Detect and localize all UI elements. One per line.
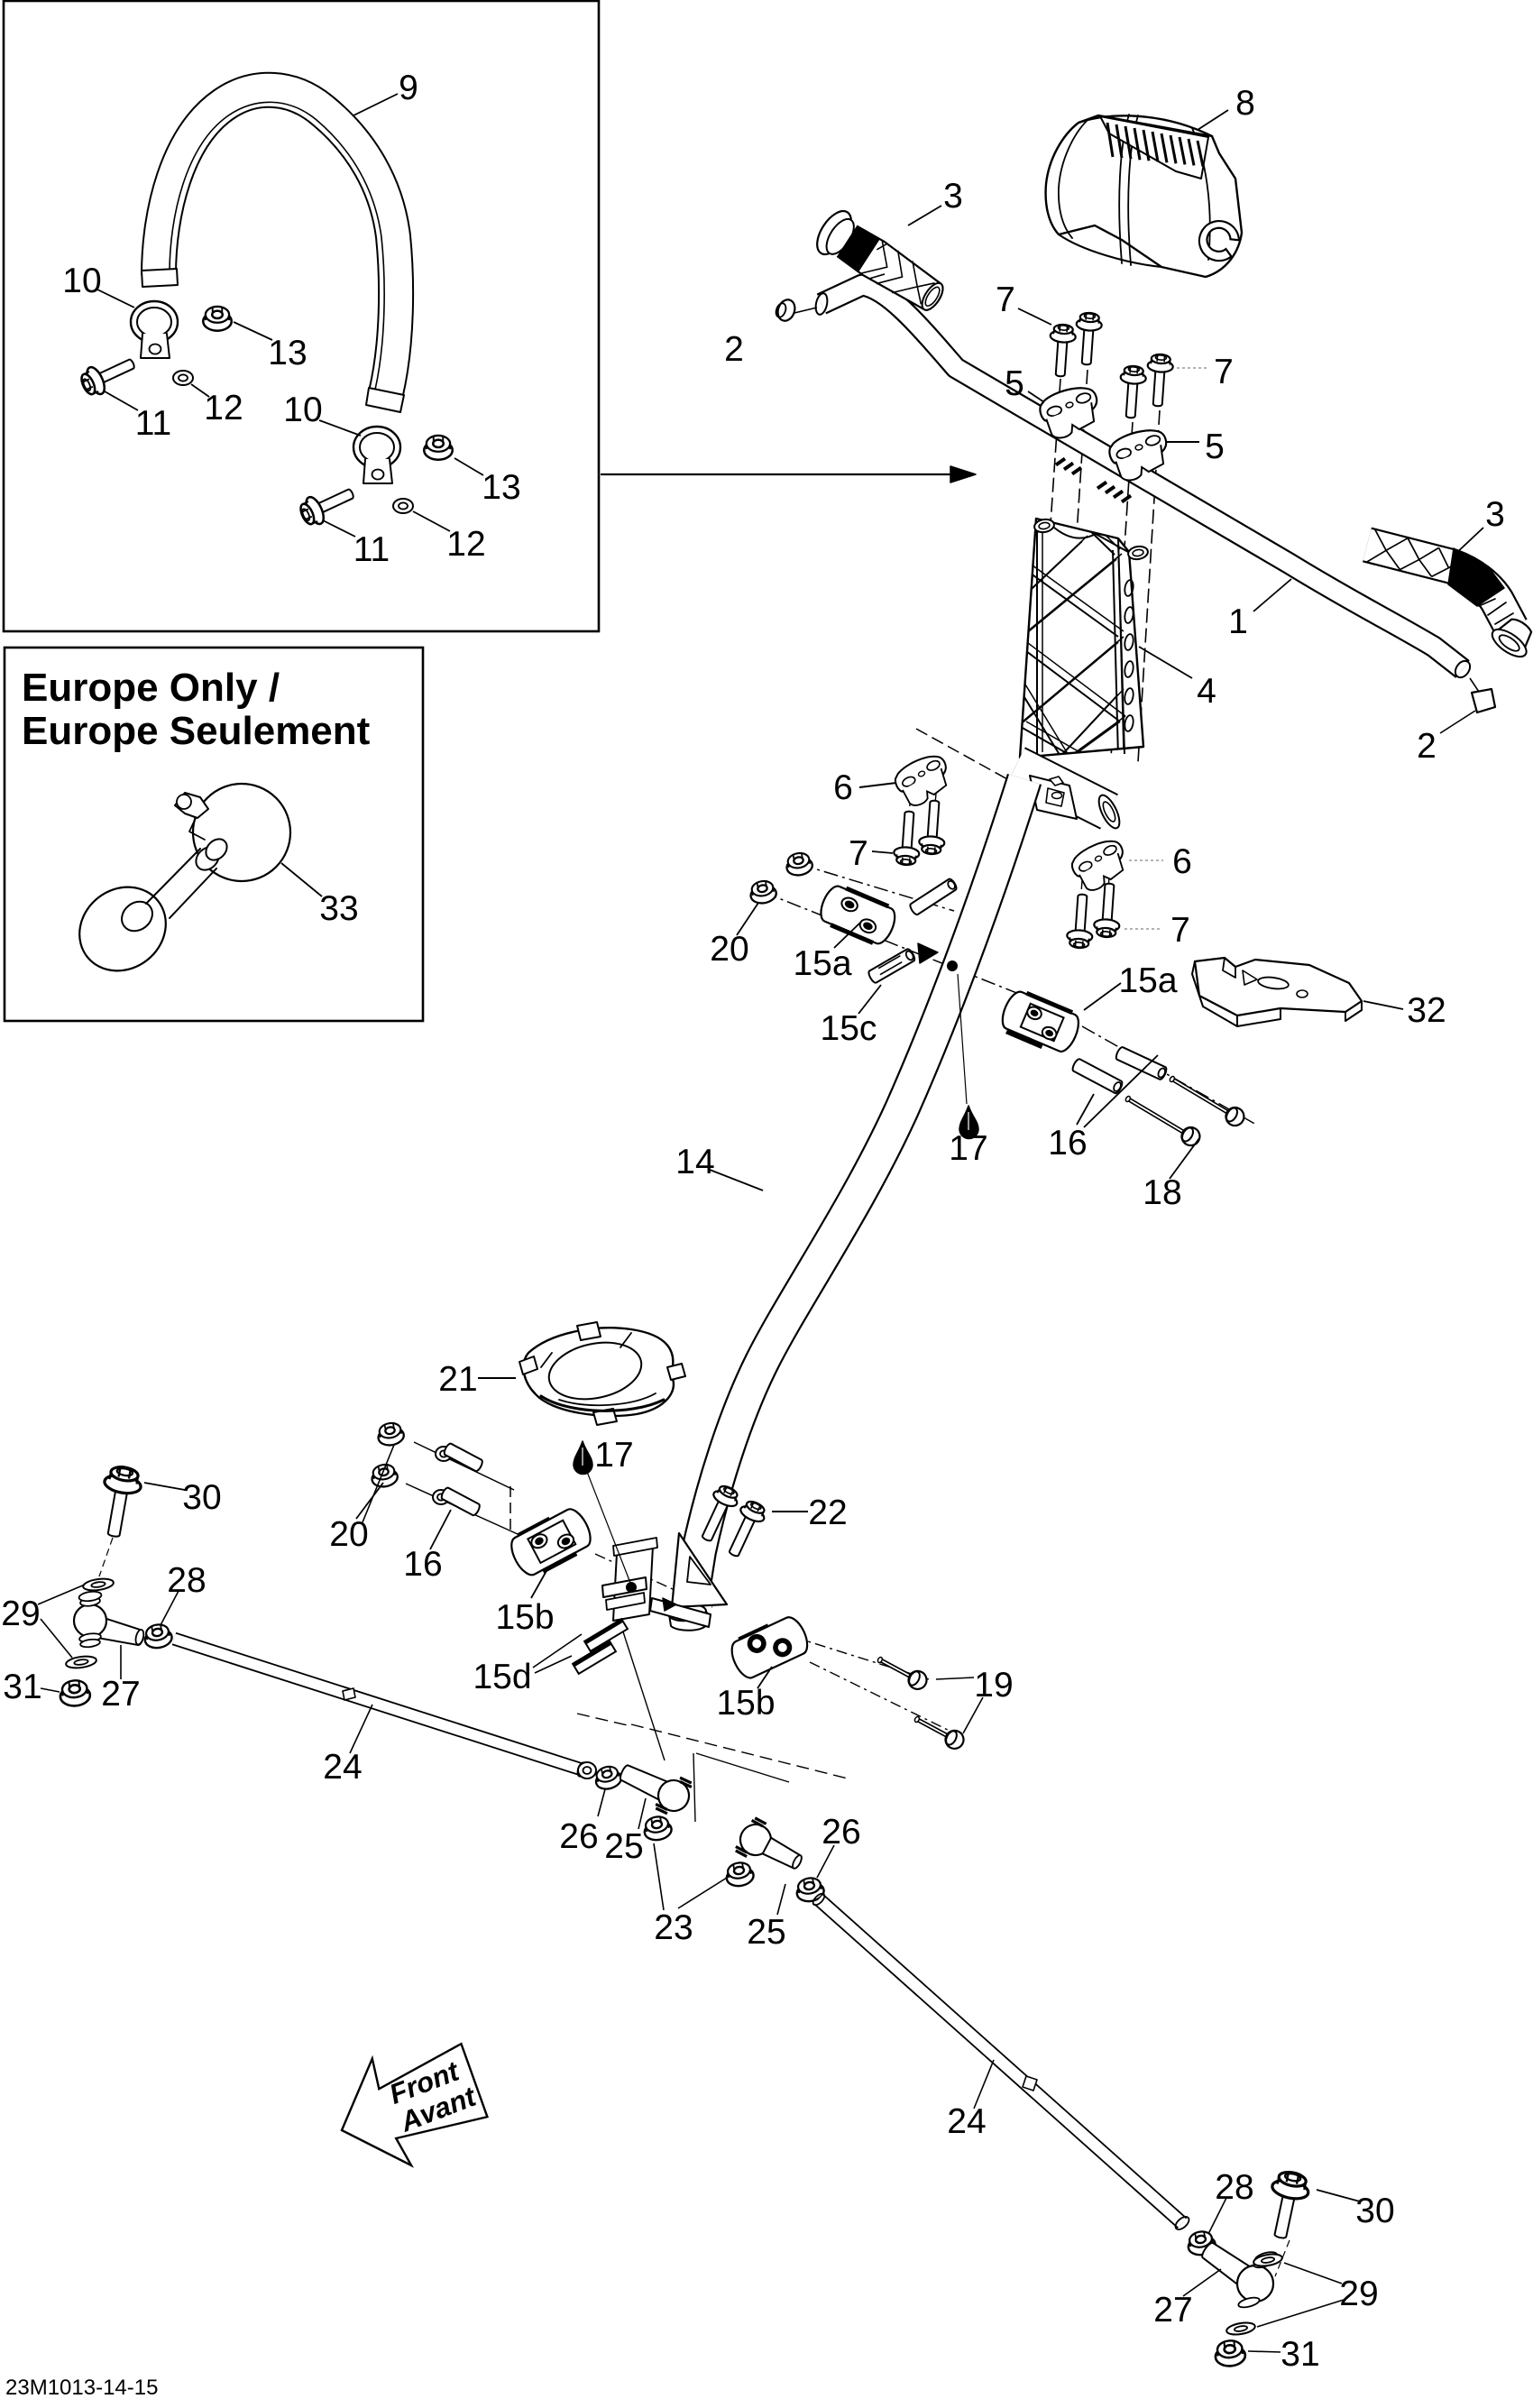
svg-text:Europe Only /: Europe Only /: [22, 666, 280, 710]
svg-text:13: 13: [268, 334, 307, 372]
svg-text:17: 17: [949, 1129, 987, 1168]
svg-text:28: 28: [1215, 2168, 1253, 2207]
svg-text:12: 12: [204, 389, 243, 427]
svg-text:3: 3: [1485, 495, 1505, 534]
svg-text:26: 26: [559, 1817, 598, 1856]
svg-text:15b: 15b: [495, 1598, 554, 1637]
svg-text:32: 32: [1407, 991, 1446, 1030]
svg-text:12: 12: [446, 525, 485, 564]
svg-text:24: 24: [323, 1748, 362, 1787]
svg-text:2: 2: [1417, 727, 1437, 766]
svg-text:13: 13: [482, 468, 520, 507]
svg-text:1: 1: [1228, 602, 1248, 641]
svg-text:29: 29: [1, 1595, 40, 1633]
svg-text:28: 28: [167, 1561, 206, 1600]
svg-text:16: 16: [403, 1545, 442, 1584]
svg-text:3: 3: [943, 177, 963, 216]
svg-text:16: 16: [1048, 1124, 1087, 1163]
svg-text:24: 24: [947, 2102, 986, 2141]
svg-text:25: 25: [747, 1913, 785, 1952]
svg-text:10: 10: [283, 391, 322, 429]
svg-text:7: 7: [849, 834, 868, 873]
svg-text:7: 7: [1170, 911, 1190, 950]
svg-text:Europe Seulement: Europe Seulement: [22, 709, 371, 753]
svg-text:6: 6: [833, 768, 853, 807]
svg-text:2: 2: [724, 330, 744, 369]
svg-text:15d: 15d: [473, 1658, 531, 1696]
svg-text:19: 19: [974, 1666, 1013, 1705]
svg-text:4: 4: [1197, 672, 1216, 711]
svg-text:9: 9: [399, 69, 418, 107]
svg-text:21: 21: [438, 1360, 477, 1399]
svg-text:15a: 15a: [793, 944, 851, 983]
svg-text:8: 8: [1235, 84, 1255, 123]
svg-text:31: 31: [3, 1668, 41, 1706]
svg-text:27: 27: [1153, 2291, 1192, 2330]
svg-text:23M1013-14-15: 23M1013-14-15: [5, 2376, 158, 2400]
svg-text:5: 5: [1005, 364, 1024, 403]
svg-text:27: 27: [101, 1675, 140, 1714]
svg-text:10: 10: [62, 262, 101, 300]
svg-text:14: 14: [675, 1143, 714, 1181]
svg-text:15c: 15c: [821, 1009, 877, 1048]
svg-text:31: 31: [1281, 2335, 1319, 2374]
svg-text:20: 20: [710, 930, 748, 969]
svg-text:15b: 15b: [716, 1684, 775, 1723]
svg-text:17: 17: [594, 1436, 633, 1475]
svg-text:7: 7: [996, 280, 1015, 319]
svg-text:30: 30: [1355, 2192, 1394, 2230]
svg-text:26: 26: [822, 1813, 860, 1852]
svg-text:25: 25: [604, 1827, 643, 1866]
svg-text:29: 29: [1339, 2275, 1378, 2313]
svg-text:7: 7: [1214, 353, 1234, 391]
svg-text:11: 11: [135, 404, 172, 443]
svg-text:30: 30: [182, 1478, 221, 1517]
svg-text:5: 5: [1205, 427, 1225, 466]
svg-text:23: 23: [654, 1908, 693, 1947]
svg-text:15a: 15a: [1118, 961, 1177, 1000]
svg-text:22: 22: [808, 1494, 847, 1532]
svg-text:6: 6: [1172, 842, 1192, 881]
svg-text:20: 20: [329, 1515, 368, 1554]
svg-text:11: 11: [353, 530, 390, 569]
svg-text:33: 33: [319, 889, 358, 928]
svg-text:18: 18: [1143, 1173, 1181, 1212]
